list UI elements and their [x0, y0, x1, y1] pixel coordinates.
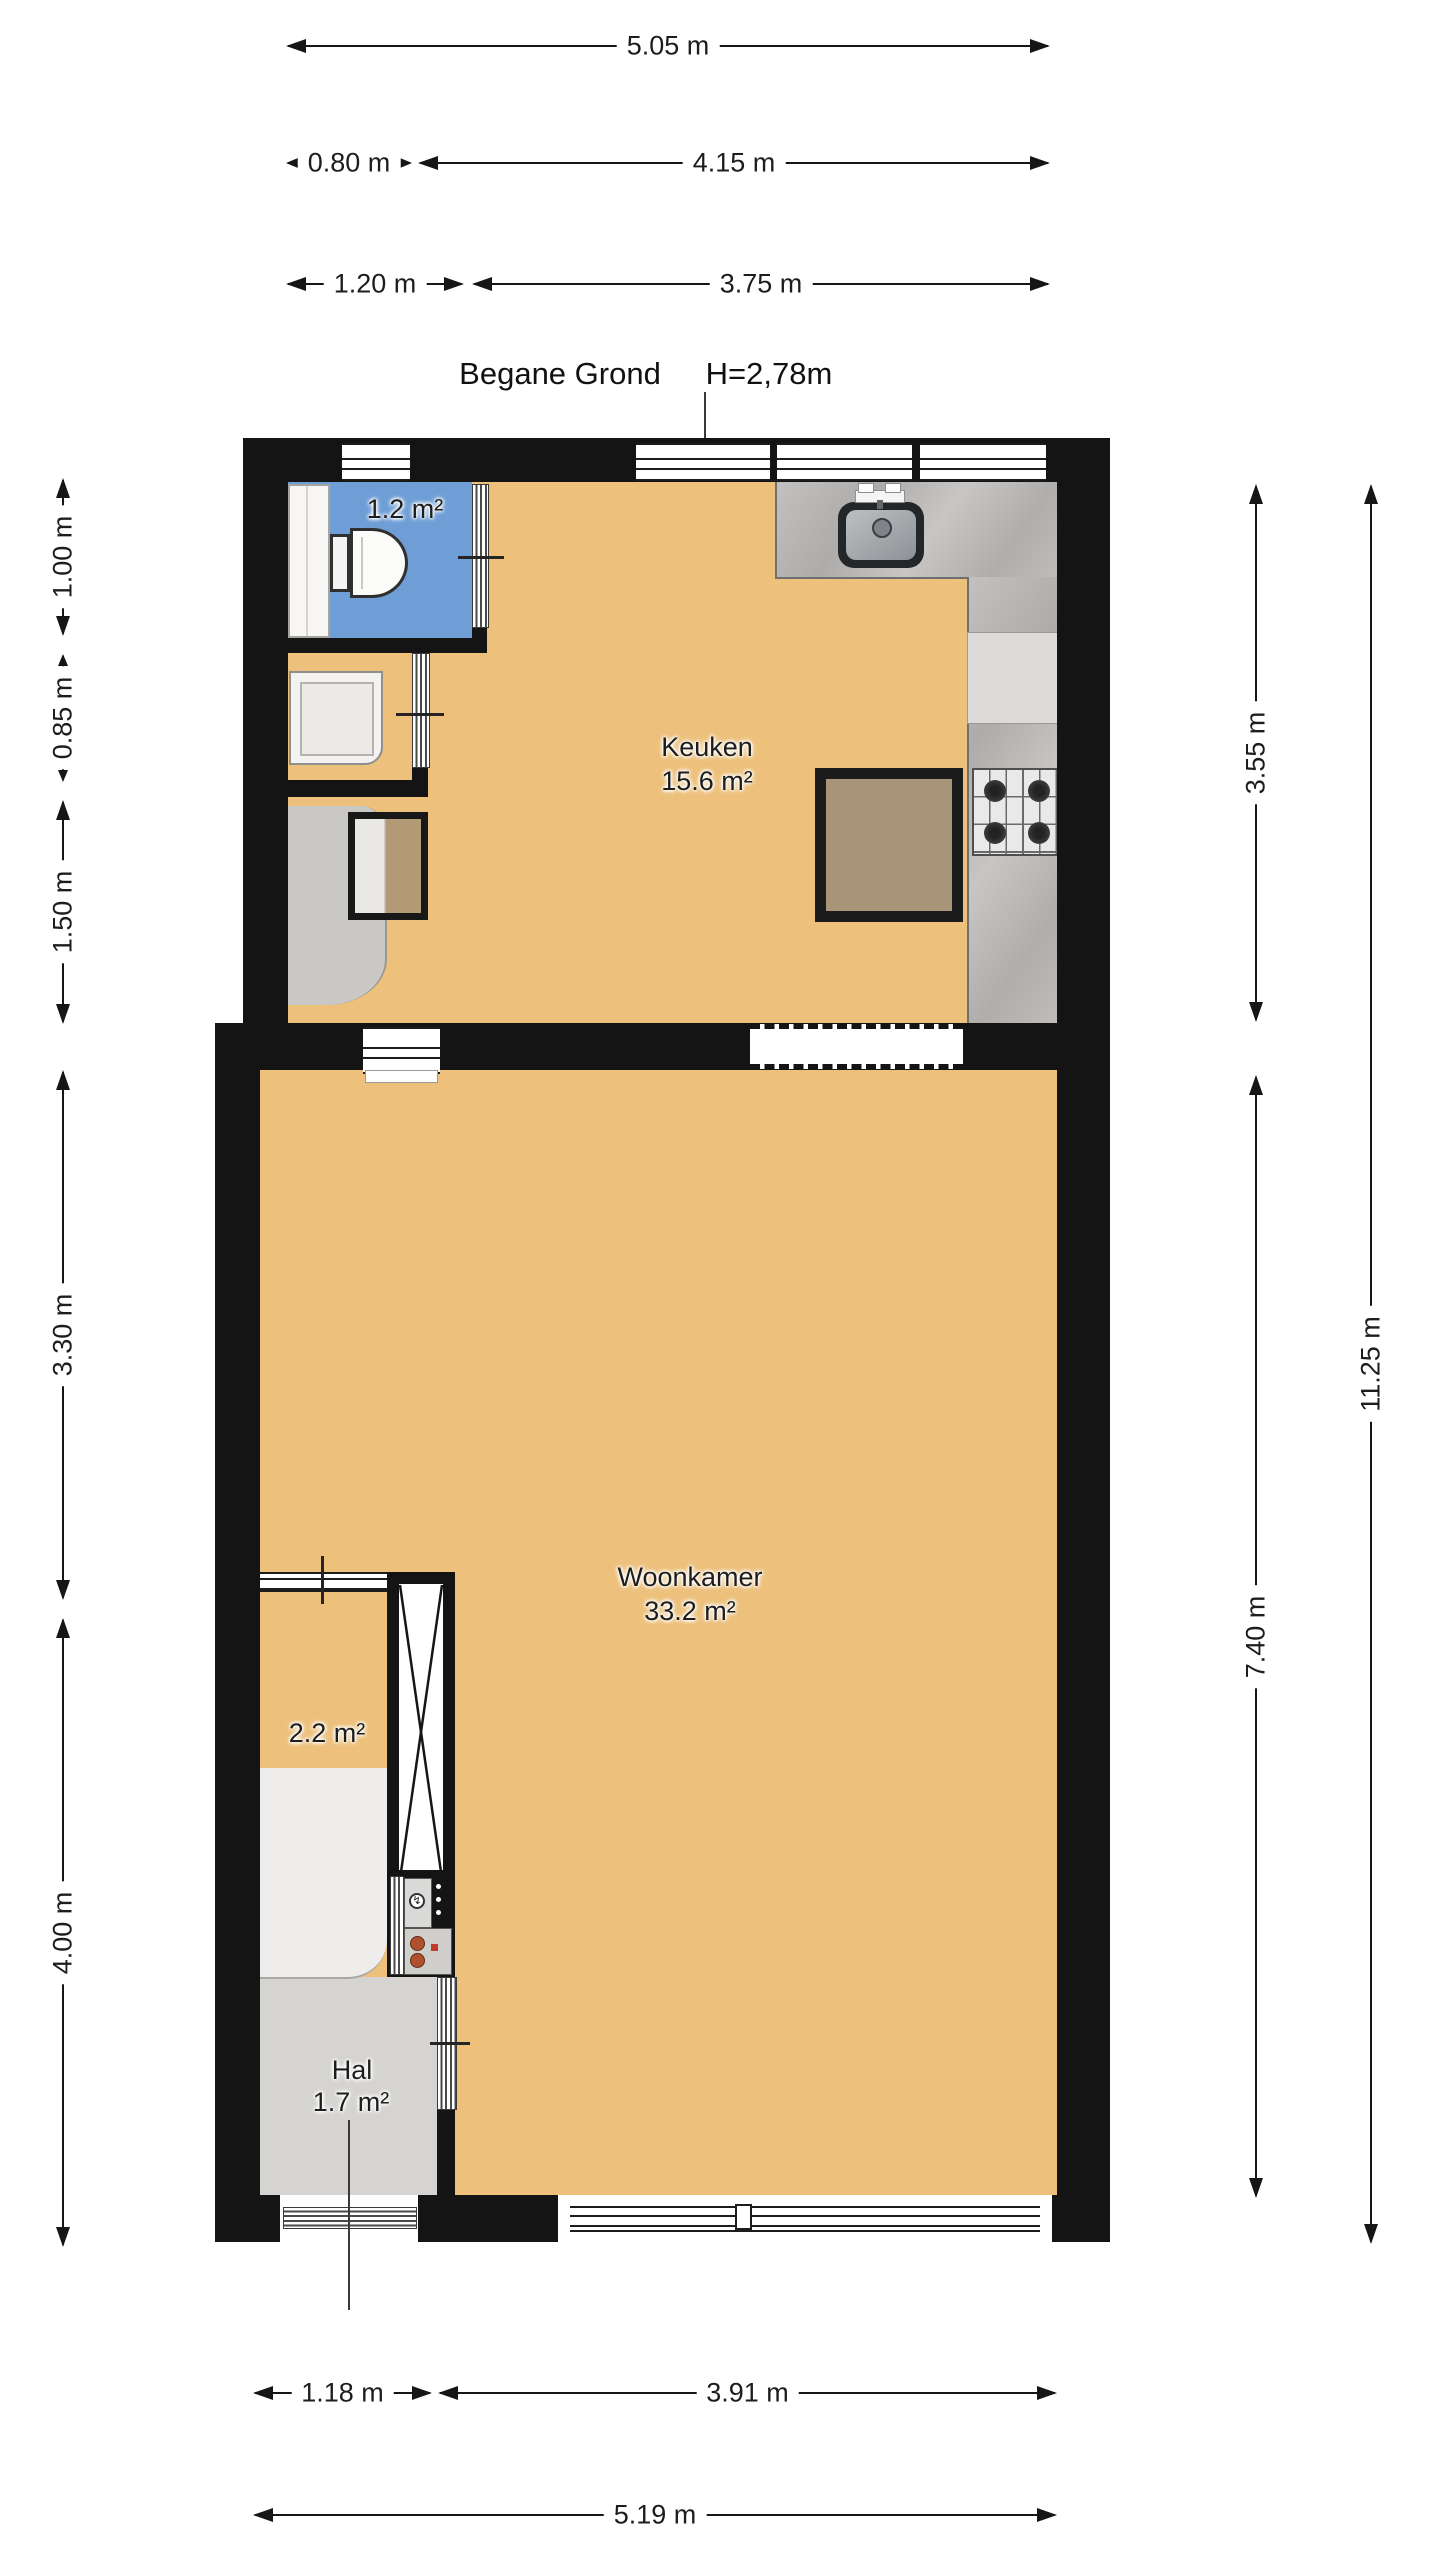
dim-left-150: 1.50 m	[62, 802, 64, 1022]
arrow-right-icon	[400, 158, 412, 168]
living-room-window	[570, 2206, 1040, 2232]
dim-left-330: 3.30 m	[62, 1072, 64, 1598]
kitchen-name-label: Keuken	[661, 731, 753, 763]
arrow-down-icon	[56, 616, 70, 636]
faucet-spout	[877, 500, 883, 509]
wall-left-upper	[243, 438, 288, 1070]
dim-label: 0.80 m	[298, 148, 401, 179]
arrow-left-icon	[438, 2386, 458, 2400]
dim-top-total: 5.05 m	[288, 45, 1048, 47]
kitchen-sink	[838, 502, 924, 568]
arrow-left-icon	[253, 2386, 273, 2400]
dim-top-415: 4.15 m	[420, 162, 1048, 164]
dim-right-1125: 11.25 m	[1370, 486, 1372, 2242]
stairs-area-label: 2.2 m²	[289, 1717, 366, 1749]
window-mullion	[770, 440, 777, 480]
dim-label: 3.55 m	[1241, 702, 1272, 805]
arrow-left-icon	[286, 39, 306, 53]
living-room-area-label: 33.2 m²	[644, 1595, 736, 1627]
dim-label: 1.00 m	[48, 506, 79, 609]
arrow-up-icon	[1249, 484, 1263, 504]
stove	[972, 768, 1060, 856]
arrow-left-icon	[472, 277, 492, 291]
dim-label: 3.30 m	[48, 1284, 79, 1387]
meter-lower-panel	[404, 1928, 452, 1975]
arrow-left-icon	[418, 156, 438, 170]
arrow-right-icon	[1037, 2508, 1057, 2522]
meter-dot-icon	[436, 1910, 441, 1915]
bathroom-window	[342, 443, 410, 481]
kitchen-table	[815, 768, 963, 922]
stair-tread	[260, 1812, 387, 1858]
appliance-panel	[967, 632, 1059, 724]
burner-icon	[984, 822, 1006, 844]
dim-left-100: 1.00 m	[62, 480, 64, 634]
dim-bottom-total: 5.19 m	[255, 2514, 1055, 2516]
dim-label: 4.00 m	[48, 1881, 79, 1984]
pipe-icon	[410, 1936, 425, 1951]
meter-dot-icon	[436, 1897, 441, 1902]
arrow-up-icon	[1364, 484, 1378, 504]
dim-label: 5.05 m	[617, 31, 720, 62]
washing-machine-lid	[300, 682, 374, 756]
living-room-name-label: Woonkamer	[617, 1561, 762, 1593]
meter-cupboard-door	[390, 1876, 404, 1975]
arrow-left-icon	[286, 277, 306, 291]
dim-label: 3.75 m	[710, 269, 813, 300]
dim-label: 5.19 m	[604, 2500, 707, 2531]
measure-tick	[458, 556, 504, 559]
burner-icon	[1028, 822, 1050, 844]
wall-bathroom-bottom	[288, 638, 472, 653]
dim-label: 0.85 m	[48, 667, 79, 770]
arrow-down-icon	[56, 1580, 70, 1600]
dim-label: 4.15 m	[683, 148, 786, 179]
cabinet	[348, 812, 428, 920]
arrow-left-icon	[286, 158, 298, 168]
faucet-handle	[885, 483, 901, 493]
arrow-up-icon	[56, 1070, 70, 1090]
dim-top-080: 0.80 m	[288, 162, 410, 164]
laundry-door	[412, 653, 430, 768]
dim-top-120: 1.20 m	[288, 283, 462, 285]
window-sill	[365, 1070, 438, 1083]
wall-post	[472, 626, 487, 653]
window-mullion	[912, 440, 920, 480]
arrow-left-icon	[253, 2508, 273, 2522]
arrow-up-icon	[56, 800, 70, 820]
hall-area-label: 1.7 m²	[313, 2086, 390, 2118]
stair-tread	[260, 1940, 387, 1979]
arrow-down-icon	[56, 1004, 70, 1024]
meter-dot-icon	[436, 1884, 441, 1889]
dim-bottom-118: 1.18 m	[255, 2392, 430, 2394]
stair-shaft-void	[399, 1584, 443, 1880]
dim-bottom-391: 3.91 m	[440, 2392, 1055, 2394]
arrow-up-icon	[58, 654, 68, 666]
wall-hall-door-post	[437, 2108, 455, 2195]
dim-right-740: 7.40 m	[1255, 1077, 1257, 2196]
electric-meter-icon: ↯	[409, 1893, 425, 1909]
dim-label: 7.40 m	[1241, 1585, 1272, 1688]
dim-right-355: 3.55 m	[1255, 486, 1257, 1020]
ceiling-height-label: H=2,78m	[706, 356, 833, 392]
window-glass	[636, 458, 1046, 470]
dim-label: 11.25 m	[1356, 1306, 1387, 1422]
window-glass	[342, 458, 410, 470]
wall-right	[1057, 438, 1110, 2242]
toilet-cistern	[330, 534, 350, 592]
open-passage	[750, 1024, 963, 1069]
page-title: Begane Grond	[459, 356, 661, 392]
arrow-down-icon	[1364, 2224, 1378, 2244]
arrow-up-icon	[1249, 1075, 1263, 1095]
dim-label: 1.20 m	[324, 269, 427, 300]
burner-icon	[984, 780, 1006, 802]
measure-tick	[430, 2042, 470, 2045]
dim-top-375: 3.75 m	[474, 283, 1048, 285]
sink-drain-icon	[872, 518, 892, 538]
wall-left-lower	[215, 1023, 260, 2242]
dim-label: 1.50 m	[48, 861, 79, 964]
valve-icon	[431, 1944, 438, 1951]
window-glass	[570, 2215, 1040, 2227]
stair-tread	[260, 1900, 387, 1942]
arrow-down-icon	[58, 770, 68, 782]
arrow-down-icon	[1249, 2178, 1263, 2198]
kitchen-window	[636, 443, 1046, 481]
arrow-right-icon	[444, 277, 464, 291]
stair-tread	[260, 1768, 387, 1814]
floor-plan: 5.05 m 0.80 m 4.15 m 1.20 m 3.75 m Began…	[0, 0, 1440, 2560]
burner-icon	[1028, 780, 1050, 802]
front-door	[283, 2207, 417, 2229]
arrow-right-icon	[1030, 156, 1050, 170]
wall-post	[412, 766, 428, 782]
window-glass	[363, 1047, 440, 1059]
kitchen-area-label: 15.6 m²	[661, 765, 753, 797]
wall-laundry-bottom	[288, 780, 428, 797]
measure-tick	[321, 1556, 324, 1604]
interior-window	[363, 1027, 440, 1074]
electric-panel: ↯	[404, 1878, 432, 1928]
arrow-right-icon	[1037, 2386, 1057, 2400]
stair-cross-icon	[399, 1584, 443, 1880]
pipe-icon	[410, 1953, 425, 1968]
washing-machine	[289, 671, 383, 765]
arrow-up-icon	[56, 1618, 70, 1638]
dim-left-085: 0.85 m	[62, 656, 64, 780]
arrow-down-icon	[1249, 1002, 1263, 1022]
arrow-right-icon	[1030, 39, 1050, 53]
dim-left-400: 4.00 m	[62, 1620, 64, 2245]
stair-tread	[260, 1856, 387, 1902]
bathroom-area-label: 1.2 m²	[367, 493, 444, 525]
toilet-seat-line	[361, 537, 363, 589]
arrow-up-icon	[56, 478, 70, 498]
shower-seam	[306, 486, 308, 636]
arrow-right-icon	[1030, 277, 1050, 291]
faucet-handle	[858, 483, 874, 493]
arrow-right-icon	[412, 2386, 432, 2400]
dim-label: 3.91 m	[696, 2378, 799, 2409]
dim-label: 1.18 m	[291, 2378, 394, 2409]
hall-name-label: Hal	[332, 2054, 373, 2086]
measure-tick	[396, 713, 444, 716]
front-door-swing-line	[348, 2120, 350, 2310]
arrow-down-icon	[56, 2227, 70, 2247]
shower-tray	[288, 484, 330, 638]
window-mullion	[735, 2204, 752, 2230]
